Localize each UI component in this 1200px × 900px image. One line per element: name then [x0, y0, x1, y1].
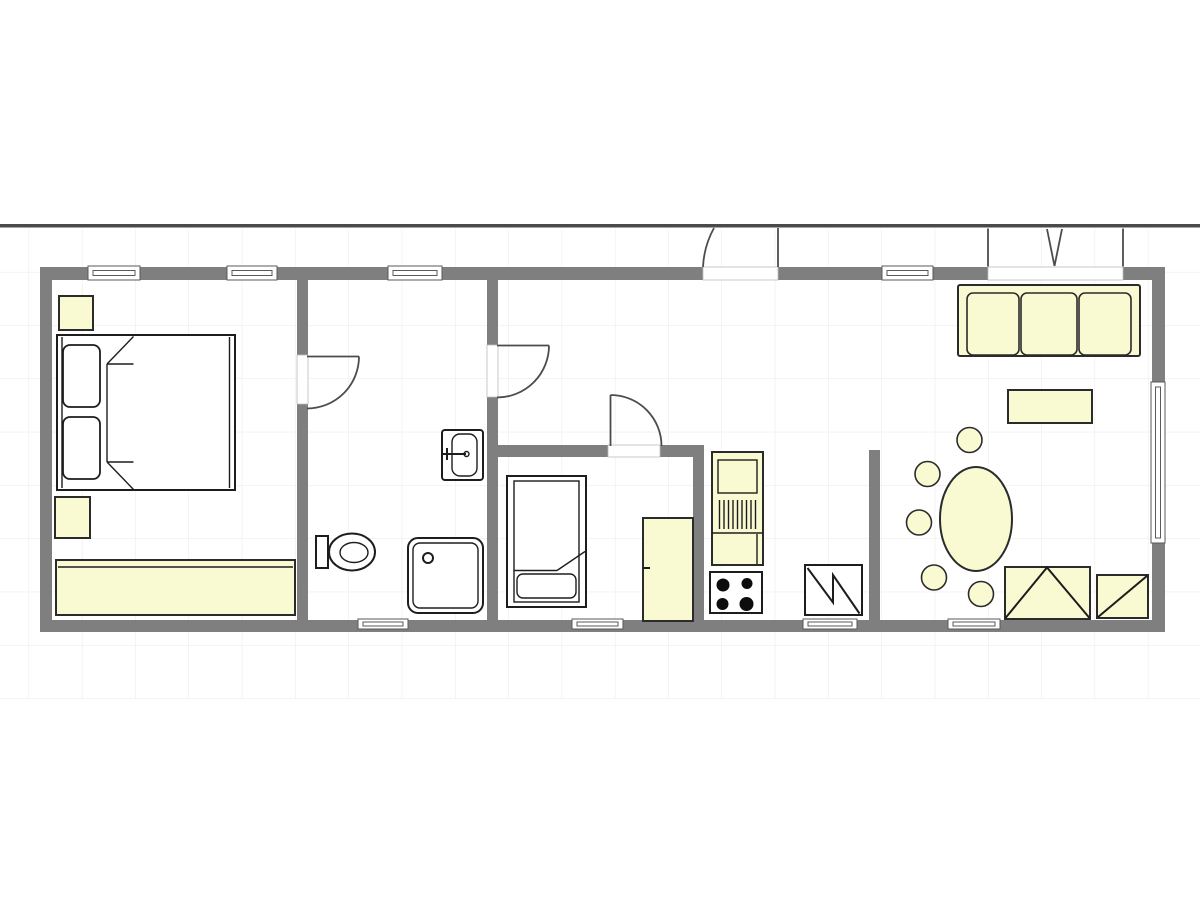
- window: [1151, 382, 1165, 543]
- kitchen-unit-with-sink: [712, 452, 763, 565]
- shower: [408, 538, 483, 613]
- single-bed: [507, 476, 586, 607]
- window: [388, 266, 442, 280]
- window: [88, 266, 140, 280]
- nightstand: [55, 497, 90, 538]
- wardrobe: [643, 518, 693, 621]
- coffee-table: [1008, 390, 1092, 423]
- window: [227, 266, 277, 280]
- window: [948, 619, 1000, 629]
- round-chair: [922, 565, 947, 590]
- sofa: [958, 285, 1140, 356]
- double-bed: [57, 335, 235, 490]
- armchair: [1005, 567, 1090, 619]
- round-chair: [915, 462, 940, 487]
- dresser: [56, 560, 295, 615]
- nightstand: [59, 296, 93, 330]
- cooktop-4-burner: [710, 572, 762, 613]
- armchair: [1097, 575, 1148, 618]
- toilet: [316, 534, 375, 571]
- window: [882, 266, 933, 280]
- round-chair: [957, 428, 982, 453]
- floor-plan-drawing: [0, 0, 1200, 900]
- floor-plan-canvas: [0, 0, 1200, 900]
- property-boundary-line: [0, 224, 1200, 228]
- window: [803, 619, 857, 629]
- oval-dining-table: [940, 467, 1012, 571]
- appliance-square: [805, 565, 862, 615]
- round-chair: [969, 582, 994, 607]
- window: [572, 619, 623, 629]
- washbasin: [442, 430, 483, 480]
- round-chair: [907, 510, 932, 535]
- window: [358, 619, 408, 629]
